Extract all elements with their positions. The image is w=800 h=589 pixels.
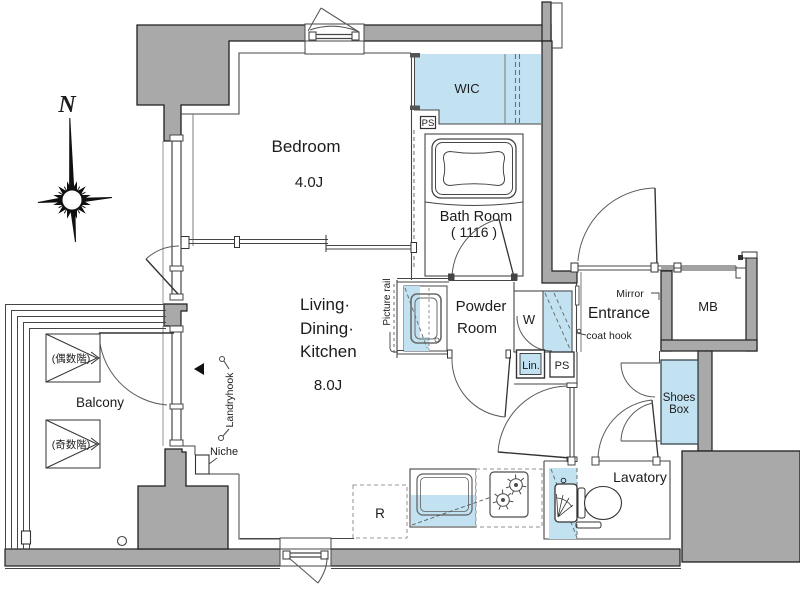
svg-text:Shoes: Shoes bbox=[663, 392, 696, 404]
svg-text:Room: Room bbox=[457, 320, 497, 337]
svg-text:Mirror: Mirror bbox=[616, 288, 644, 300]
svg-text:W: W bbox=[523, 312, 536, 327]
svg-text:N: N bbox=[57, 92, 77, 118]
svg-text:Entrance: Entrance bbox=[588, 305, 650, 322]
svg-text:coat hook: coat hook bbox=[586, 330, 632, 342]
svg-text:4.0J: 4.0J bbox=[295, 174, 323, 191]
svg-text:MB: MB bbox=[698, 299, 718, 314]
svg-text:(奇数階): (奇数階) bbox=[52, 438, 91, 451]
svg-text:8.0J: 8.0J bbox=[314, 377, 342, 394]
svg-text:Bath Room: Bath Room bbox=[440, 209, 513, 225]
svg-text:Box: Box bbox=[669, 404, 689, 416]
svg-text:Landryhook: Landryhook bbox=[224, 372, 236, 428]
svg-text:WIC: WIC bbox=[454, 81, 479, 96]
svg-text:(偶数階): (偶数階) bbox=[52, 352, 91, 365]
svg-text:Powder: Powder bbox=[456, 298, 507, 315]
svg-text:Picture rail: Picture rail bbox=[382, 278, 393, 325]
svg-text:Dining·: Dining· bbox=[300, 319, 354, 338]
svg-text:Kitchen: Kitchen bbox=[300, 342, 357, 361]
svg-text:R: R bbox=[375, 506, 385, 521]
svg-text:Balcony: Balcony bbox=[76, 395, 124, 410]
svg-text:PS: PS bbox=[555, 360, 570, 372]
svg-text:Lin.: Lin. bbox=[522, 360, 540, 372]
svg-text:Niche: Niche bbox=[210, 446, 238, 458]
svg-text:Living·: Living· bbox=[300, 295, 350, 314]
svg-text:Bedroom: Bedroom bbox=[272, 137, 341, 156]
svg-text:Lavatory: Lavatory bbox=[613, 469, 667, 485]
svg-text:PS: PS bbox=[422, 118, 435, 129]
